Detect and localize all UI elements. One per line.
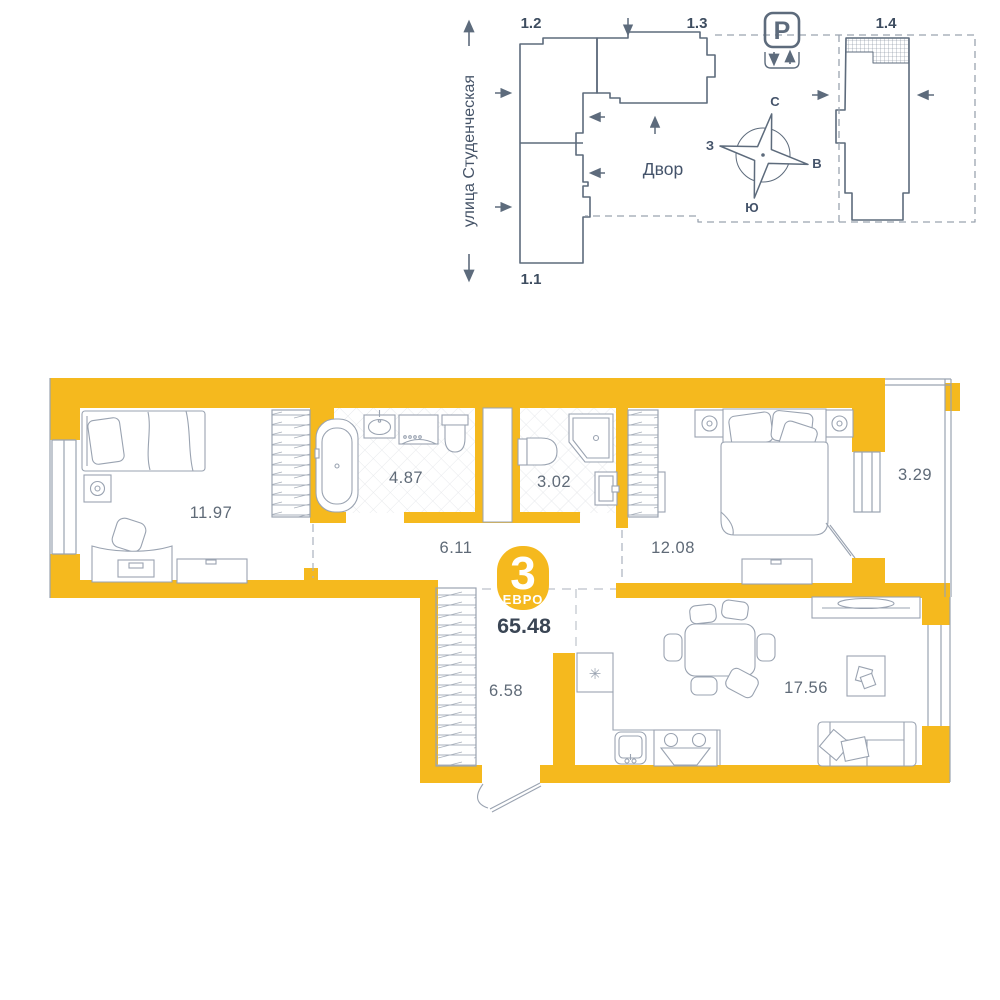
nightstand-lamp-2 bbox=[695, 410, 724, 437]
coffee-table bbox=[847, 656, 885, 696]
building-label-1-2: 1.2 bbox=[521, 15, 542, 32]
floorplan-page: улица Студенческая 1.2 1.1 1.3 1.4 Двор bbox=[0, 0, 1000, 1000]
site-plan: улица Студенческая 1.2 1.1 1.3 1.4 Двор bbox=[461, 13, 975, 288]
apartment-plan: ✳ bbox=[50, 378, 960, 812]
desk-chair bbox=[110, 516, 148, 554]
toilet-bathroom bbox=[442, 415, 468, 452]
building-label-1-1: 1.1 bbox=[521, 271, 542, 288]
wardrobe-corridor bbox=[436, 588, 476, 766]
bathtub bbox=[315, 419, 358, 512]
building-1-3 bbox=[597, 32, 715, 103]
wardrobe-2 bbox=[628, 410, 665, 517]
building-label-1-3: 1.3 bbox=[687, 15, 708, 32]
washing-machine bbox=[399, 415, 438, 444]
dresser-2 bbox=[742, 559, 812, 584]
sink-wc bbox=[595, 472, 619, 505]
sofa bbox=[818, 722, 916, 766]
building-1-2-and-1-1 bbox=[520, 38, 597, 263]
balcony-door-leaf bbox=[826, 523, 855, 558]
area-bedroom-2: 12.08 bbox=[651, 539, 695, 557]
badge-plan-type: ЕВРО bbox=[503, 592, 544, 607]
total-area: 65.48 bbox=[497, 614, 551, 638]
vent-shaft bbox=[483, 408, 512, 522]
area-bathroom: 4.87 bbox=[389, 469, 423, 487]
compass-east: В bbox=[812, 156, 821, 171]
wardrobe-1 bbox=[272, 410, 310, 517]
compass-north: С bbox=[770, 94, 780, 109]
parking-letter: P bbox=[774, 17, 791, 45]
street: улица Студенческая bbox=[461, 22, 478, 280]
compass: С Ю З В bbox=[706, 94, 822, 215]
fridge: ✳ bbox=[577, 653, 613, 692]
plot-boundary bbox=[585, 35, 975, 222]
kitchen-sink bbox=[615, 732, 646, 764]
area-corridor: 6.58 bbox=[489, 682, 523, 700]
stove-hood bbox=[654, 730, 717, 766]
area-balcony: 3.29 bbox=[898, 466, 932, 484]
compass-south: Ю bbox=[745, 200, 758, 215]
tv-console bbox=[812, 597, 920, 618]
current-section-hatch bbox=[846, 38, 909, 63]
entrance-door bbox=[478, 783, 541, 812]
area-bedroom-1: 11.97 bbox=[190, 504, 233, 522]
desk bbox=[92, 546, 172, 582]
parking-sign: P bbox=[765, 13, 799, 68]
bed-double bbox=[721, 409, 828, 535]
bed-single bbox=[82, 411, 205, 471]
dining-table bbox=[685, 624, 755, 676]
area-hallway: 6.11 bbox=[440, 539, 473, 557]
street-name: улица Студенческая bbox=[461, 75, 478, 227]
window-bedroom-2-balcony bbox=[854, 452, 880, 512]
building-1-4 bbox=[836, 38, 909, 220]
balcony-glazing bbox=[885, 379, 951, 597]
compass-west: З bbox=[706, 138, 714, 153]
plan-type-badge: 3 ЕВРО bbox=[497, 546, 549, 610]
nightstand-lamp-3 bbox=[826, 410, 853, 437]
toilet-wc bbox=[518, 438, 557, 465]
area-kitchen-living: 17.56 bbox=[784, 679, 828, 697]
window-bedroom-1 bbox=[52, 440, 76, 554]
plan-canvas: улица Студенческая 1.2 1.1 1.3 1.4 Двор bbox=[0, 0, 1000, 1000]
courtyard-label: Двор bbox=[643, 159, 683, 179]
dresser-1 bbox=[177, 559, 247, 583]
fridge-snowflake-icon: ✳ bbox=[589, 666, 602, 683]
nightstand-lamp-1 bbox=[84, 475, 111, 502]
building-label-1-4: 1.4 bbox=[876, 15, 898, 32]
area-wc: 3.02 bbox=[537, 473, 571, 491]
